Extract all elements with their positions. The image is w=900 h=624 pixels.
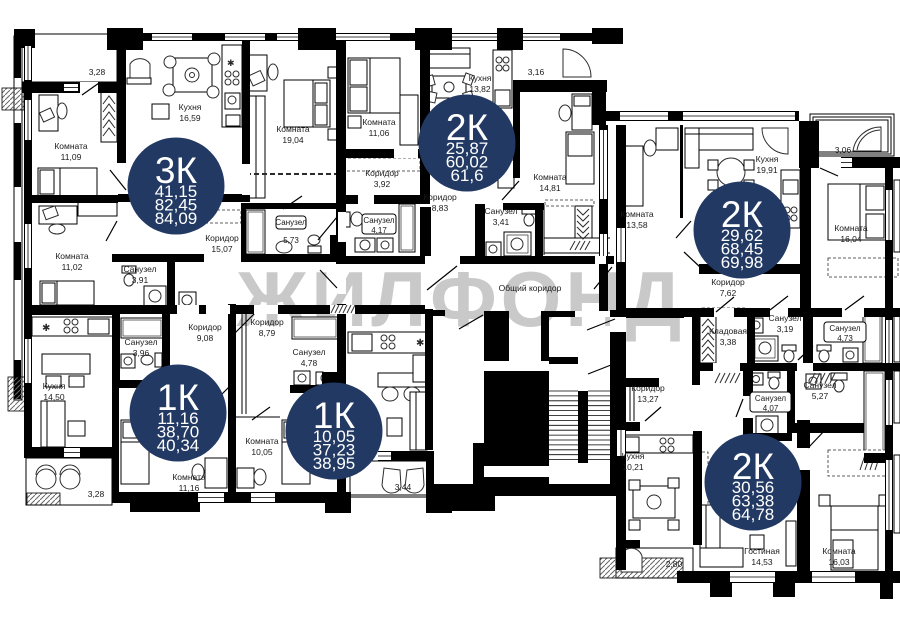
svg-text:2,80: 2,80 [666, 559, 683, 569]
svg-text:3,44: 3,44 [395, 482, 412, 492]
svg-text:Кухня16,59: Кухня16,59 [179, 102, 202, 123]
svg-text:Санузел: Санузел [275, 218, 306, 227]
svg-text:61,6: 61,6 [450, 166, 483, 185]
svg-text:69,98: 69,98 [721, 253, 764, 272]
svg-text:3,28: 3,28 [89, 67, 106, 77]
svg-text:Кухня14,50: Кухня14,50 [43, 381, 66, 402]
svg-text:Кухня19,91: Кухня19,91 [756, 154, 779, 175]
svg-text:40,34: 40,34 [157, 436, 200, 455]
svg-text:64,78: 64,78 [732, 505, 775, 524]
svg-text:84,09: 84,09 [155, 209, 198, 228]
svg-text:5,73: 5,73 [283, 236, 299, 245]
svg-text:3,28: 3,28 [88, 489, 105, 499]
svg-text:Общий коридор: Общий коридор [499, 283, 562, 293]
svg-text:✱: ✱ [42, 323, 50, 334]
svg-text:Кухня13,82: Кухня13,82 [469, 73, 492, 94]
svg-text:✱: ✱ [416, 338, 424, 349]
svg-text:3,16: 3,16 [528, 67, 545, 77]
svg-text:✱: ✱ [227, 58, 235, 68]
svg-text:3,06: 3,06 [835, 145, 852, 155]
svg-text:Кухня10,21: Кухня10,21 [622, 451, 645, 472]
svg-text:38,95: 38,95 [313, 454, 356, 473]
